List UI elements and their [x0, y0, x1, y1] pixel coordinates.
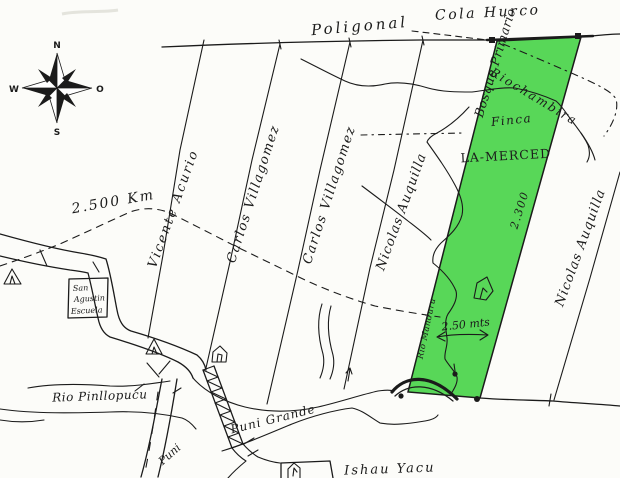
dashed-line-2500km	[0, 209, 440, 317]
compass-rose: N S W O	[9, 41, 104, 138]
river-band-ticks	[40, 250, 99, 272]
dashed-line-middle	[361, 133, 462, 135]
scan-smudge	[62, 10, 118, 14]
compass-north-label: N	[53, 41, 61, 51]
rio-pinllopucu-lower	[0, 409, 196, 429]
middle-stream-left	[319, 304, 324, 378]
strip-line-4	[344, 40, 423, 389]
strip-line-3	[267, 42, 350, 404]
label-distance-2500km: 2.500 Km	[69, 187, 156, 218]
dashed-line-poligonal	[412, 31, 487, 40]
survey-marker-square-right	[575, 33, 581, 39]
label-puni: Puni	[155, 441, 183, 468]
label-owner-nicolas-auquilla-2: Nicolas Auquilla	[552, 187, 609, 310]
label-owner-nicolas-auquilla-1: Nicolas Auquilla	[373, 151, 430, 274]
middle-stream-right	[328, 306, 333, 379]
compass-east-label: O	[96, 85, 104, 95]
label-poligonal: Poligonal	[309, 13, 408, 39]
survey-marker-dot-left	[398, 393, 403, 398]
map-canvas: N S W O Cola Hurco Poligonal Bosque Prim…	[0, 0, 620, 478]
rio-pinllopucu-extra	[0, 420, 44, 422]
label-owner-carlos-villagomez-1: Carlos Villagomez	[224, 123, 283, 265]
ishau-yacu-box	[281, 461, 333, 478]
hut-icon-west	[4, 269, 21, 284]
spring-dot	[452, 371, 457, 376]
ladder-bridge-tails	[228, 438, 280, 478]
parcel-la-merced	[408, 37, 581, 398]
label-owner-vicente-acurio: Vicente Acurio	[145, 148, 202, 271]
label-rio-pinllopucu: Rio Pinllopucu	[51, 387, 148, 404]
compass-west-label: W	[9, 85, 19, 95]
compass-south-label: S	[54, 128, 60, 138]
label-school-agustin: Agustin	[73, 293, 106, 304]
label-school-san: San	[73, 283, 89, 293]
rio-pinllopucu-upper	[28, 381, 170, 388]
label-ishau-yacu: Ishau Yacu	[343, 460, 436, 478]
hut-icon-center	[212, 346, 227, 362]
hut-icon-ishau	[288, 463, 300, 478]
label-cola-hurco: Cola Hurco	[435, 2, 541, 24]
label-school-escuela: Escuela	[70, 305, 103, 316]
survey-marker-dot-right	[474, 396, 480, 402]
hand-drawn-survey-map: N S W O Cola Hurco Poligonal Bosque Prim…	[0, 0, 620, 478]
label-owner-carlos-villagomez-2: Carlos Villagomez	[300, 124, 359, 266]
compass-light-points	[22, 53, 92, 123]
